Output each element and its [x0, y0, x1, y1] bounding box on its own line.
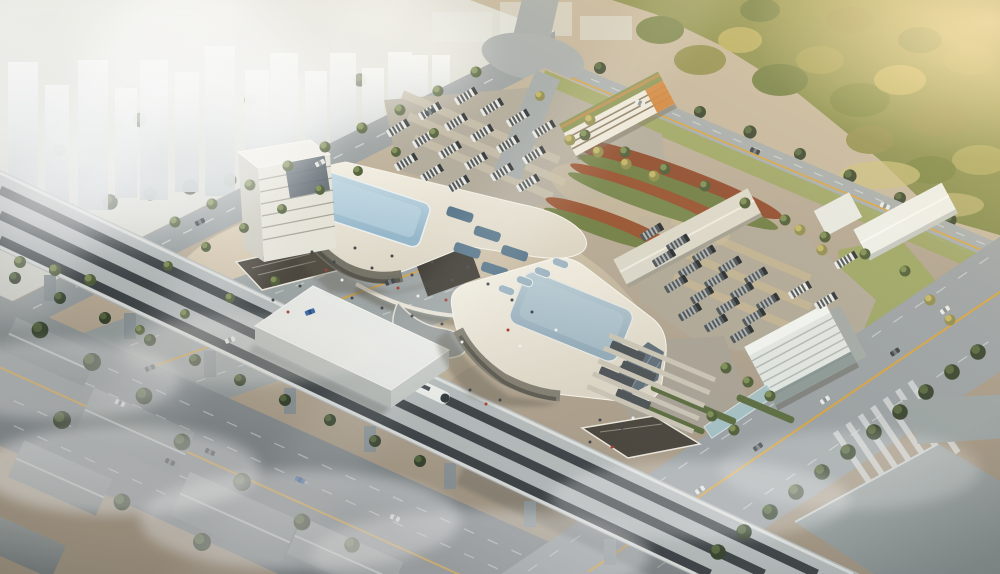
- architectural-rendering: [0, 0, 1000, 574]
- rendering-canvas: [0, 0, 1000, 574]
- mist-and-light: [0, 0, 1000, 574]
